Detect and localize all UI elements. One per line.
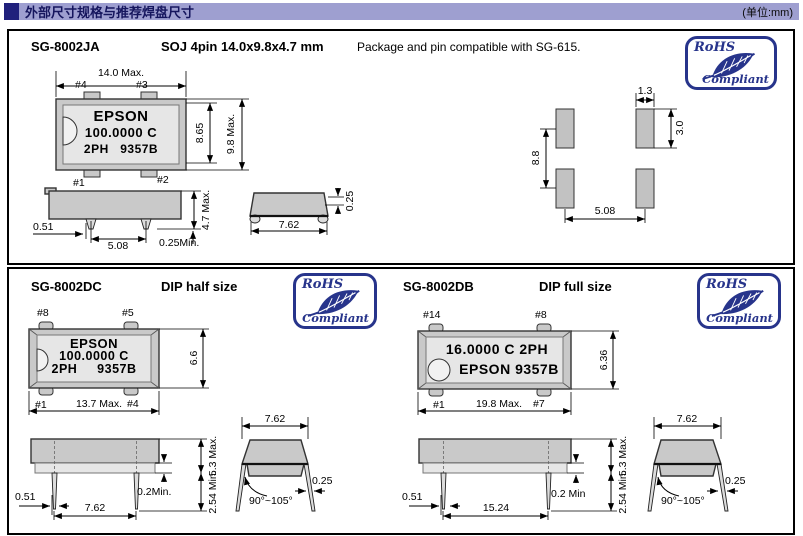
- ja-package-label: SOJ 4pin 14.0x9.8x4.7 mm: [161, 39, 324, 54]
- db-dim-lead-length: 2.54 Min.: [617, 470, 629, 513]
- rohs-badge: RoHS Compliant: [293, 273, 377, 329]
- db-dim-body-width: 19.8 Max.: [476, 398, 522, 410]
- dc-pin5-label: #5: [122, 307, 134, 319]
- ja-front-view: [45, 188, 181, 229]
- db-dim-lead-thickness: 0.25: [725, 475, 745, 487]
- ja-marking-line1: EPSON: [93, 108, 148, 125]
- unit-label: (单位:mm): [742, 4, 793, 20]
- ja-pin2-label: #2: [157, 174, 169, 186]
- rohs-compliant-label: Compliant: [302, 311, 369, 325]
- ja-land-column-pitch: 5.08: [595, 205, 615, 217]
- db-model-title: SG-8002DB: [403, 279, 474, 294]
- db-pin7-label: #7: [533, 398, 545, 410]
- dc-pin8-label: #8: [37, 307, 49, 319]
- dc-dim-lead-angle: 90°~105°: [249, 495, 293, 507]
- section-header-bar: 外部尺寸规格与推荐焊盘尺寸 (单位:mm): [19, 3, 799, 20]
- ja-dim-lead-pitch: 5.08: [108, 240, 128, 252]
- ja-dim-lead-row-span: 7.62: [279, 219, 299, 231]
- db-dim-lead-angle: 90°~105°: [661, 495, 705, 507]
- ja-pin3-label: #3: [136, 79, 148, 91]
- section-title: 外部尺寸规格与推荐焊盘尺寸: [25, 2, 194, 21]
- datasheet-page: 外部尺寸规格与推荐焊盘尺寸 (单位:mm): [0, 0, 803, 536]
- dc-marking-line3: 2PH 9357B: [51, 362, 136, 376]
- dc-dim-lead-length: 2.54 Min.: [207, 470, 219, 513]
- rohs-badge: RoHS Compliant: [685, 36, 777, 90]
- dc-model-title: SG-8002DC: [31, 279, 102, 294]
- ja-dim-body-depth: 9.8 Max.: [225, 114, 237, 154]
- ja-dim-lead-span: 8.65: [194, 123, 206, 143]
- dc-package-label: DIP half size: [161, 279, 237, 294]
- db-marking-line2: EPSON 9357B: [459, 361, 559, 377]
- ja-model-title: SG-8002JA: [31, 39, 100, 54]
- dc-dim-lead-thickness: 0.25: [312, 475, 332, 487]
- db-package-label: DIP full size: [539, 279, 612, 294]
- ja-marking-line3: 2PH 9357B: [84, 142, 158, 156]
- rohs-compliant-label: Compliant: [706, 311, 773, 325]
- panel-sg8002dc-db: SG-8002DC DIP half size EPSON 100.0000 C…: [7, 267, 795, 535]
- dc-dim-lead-pitch: 7.62: [85, 502, 105, 514]
- dc-pin4-label: #4: [127, 398, 139, 410]
- db-dim-standoff: 0.2 Min: [551, 488, 585, 500]
- db-pin1-label: #1: [433, 399, 445, 411]
- ja-dim-body-height: 4.7 Max.: [200, 190, 212, 230]
- ja-land-pad-width: 1.3: [638, 85, 653, 97]
- dc-marking-line2: 100.0000 C: [59, 349, 129, 363]
- ja-pin1-label: #1: [73, 177, 85, 189]
- ja-dim-lead-thickness: 0.25: [344, 191, 356, 211]
- rohs-badge: RoHS Compliant: [697, 273, 781, 329]
- ja-land-pad-height: 3.0: [674, 121, 686, 136]
- dc-dim-lead-width: 0.51: [15, 491, 35, 503]
- dc-front-view: [31, 439, 159, 509]
- dc-dim-lead-row-span: 7.62: [265, 413, 285, 425]
- db-dim-lead-width: 0.51: [402, 491, 422, 503]
- ja-dim-standoff: 0.25Min.: [159, 237, 199, 249]
- db-dim-lead-pitch: 15.24: [483, 502, 509, 514]
- db-dim-body-height: 6.36: [598, 350, 610, 370]
- db-pin8-label: #8: [535, 309, 547, 321]
- db-pin14-label: #14: [423, 309, 441, 321]
- ja-pin4-label: #4: [75, 79, 87, 91]
- panel-sg8002ja: SG-8002JA SOJ 4pin 14.0x9.8x4.7 mm Packa…: [7, 29, 795, 265]
- db-dim-lead-row-span: 7.62: [677, 413, 697, 425]
- ja-land-pattern: [556, 109, 654, 208]
- db-top-view: [418, 324, 571, 396]
- dc-pin1-label: #1: [35, 399, 47, 411]
- ja-compat-note: Package and pin compatible with SG-615.: [357, 40, 580, 54]
- ja-land-row-pitch: 8.8: [530, 151, 542, 166]
- rohs-compliant-label: Compliant: [702, 72, 769, 86]
- dc-dim-body-height: 6.6: [188, 351, 200, 366]
- ja-dim-body-width: 14.0 Max.: [98, 67, 144, 79]
- header-bullet-square: [4, 3, 19, 20]
- ja-marking-line2: 100.0000 C: [85, 125, 157, 140]
- ja-dim-lead-width: 0.51: [33, 221, 53, 233]
- db-front-view: [419, 439, 571, 509]
- dc-dim-body-width: 13.7 Max.: [76, 398, 122, 410]
- db-marking-line1: 16.0000 C 2PH: [446, 341, 548, 357]
- dc-dim-standoff: 0.2Min.: [137, 486, 171, 498]
